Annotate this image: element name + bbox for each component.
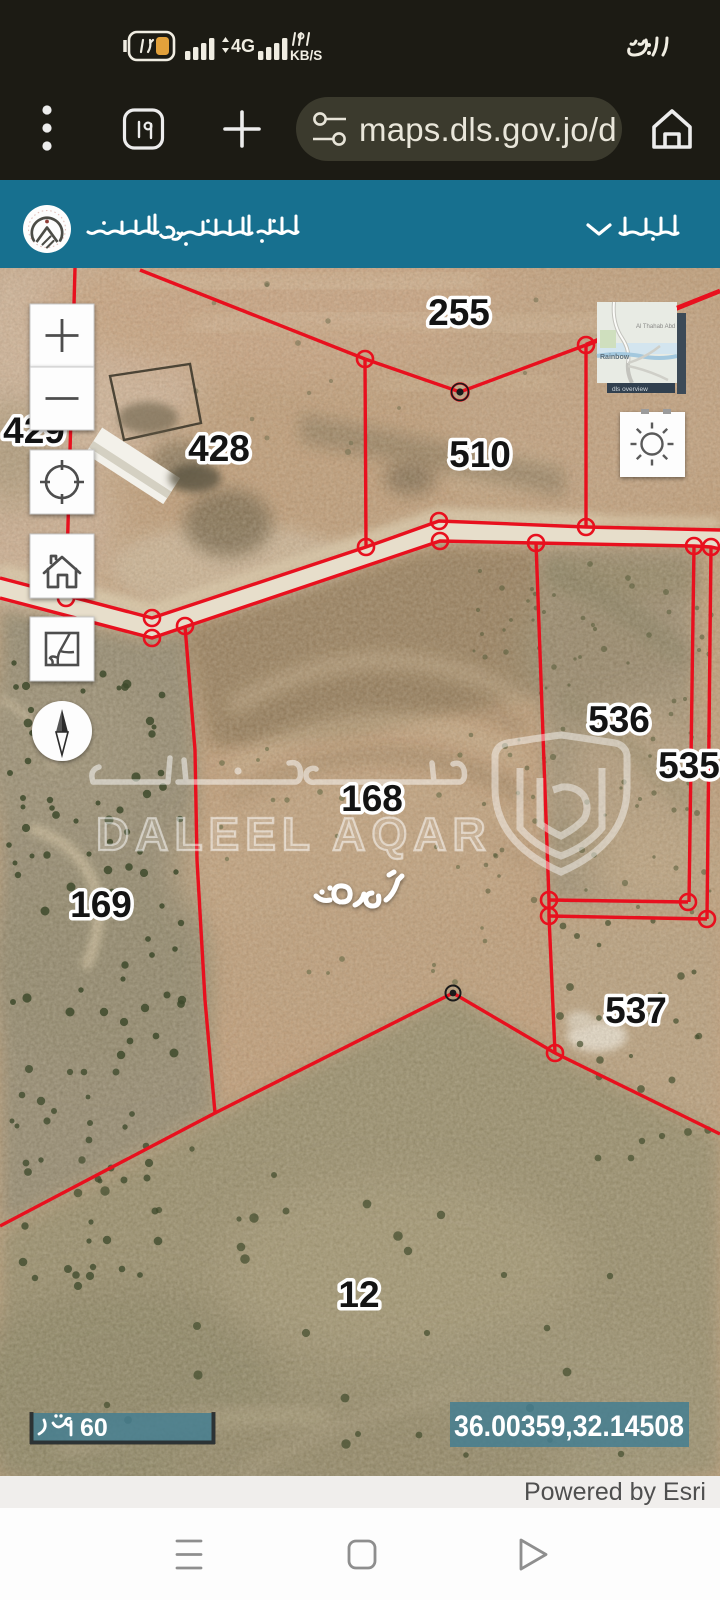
svg-text:Rainbow: Rainbow [600,354,630,361]
svg-text:36.00359,32.14508: 36.00359,32.14508 [454,1410,684,1443]
svg-text:DALEEL AQAR: DALEEL AQAR [96,808,492,860]
svg-text:Powered by Esri: Powered by Esri [524,1478,706,1506]
svg-text:169: 169 [70,884,132,925]
svg-text:KB/S: KB/S [290,48,322,63]
svg-text:255: 255 [428,292,490,333]
svg-text:537: 537 [605,990,667,1031]
svg-text:535: 535 [658,745,720,786]
svg-text:12: 12 [338,1274,379,1315]
svg-text:428: 428 [188,428,250,469]
svg-text:4G: 4G [231,36,255,56]
svg-text:dls overview: dls overview [612,386,648,393]
svg-text:510: 510 [449,434,511,475]
svg-text:Al Thahab Abd: Al Thahab Abd [636,324,675,330]
svg-text:maps.dls.gov.jo/d: maps.dls.gov.jo/d [359,111,617,148]
svg-text:60: 60 [80,1414,108,1442]
svg-text:168: 168 [341,778,403,819]
svg-text:536: 536 [588,699,650,740]
